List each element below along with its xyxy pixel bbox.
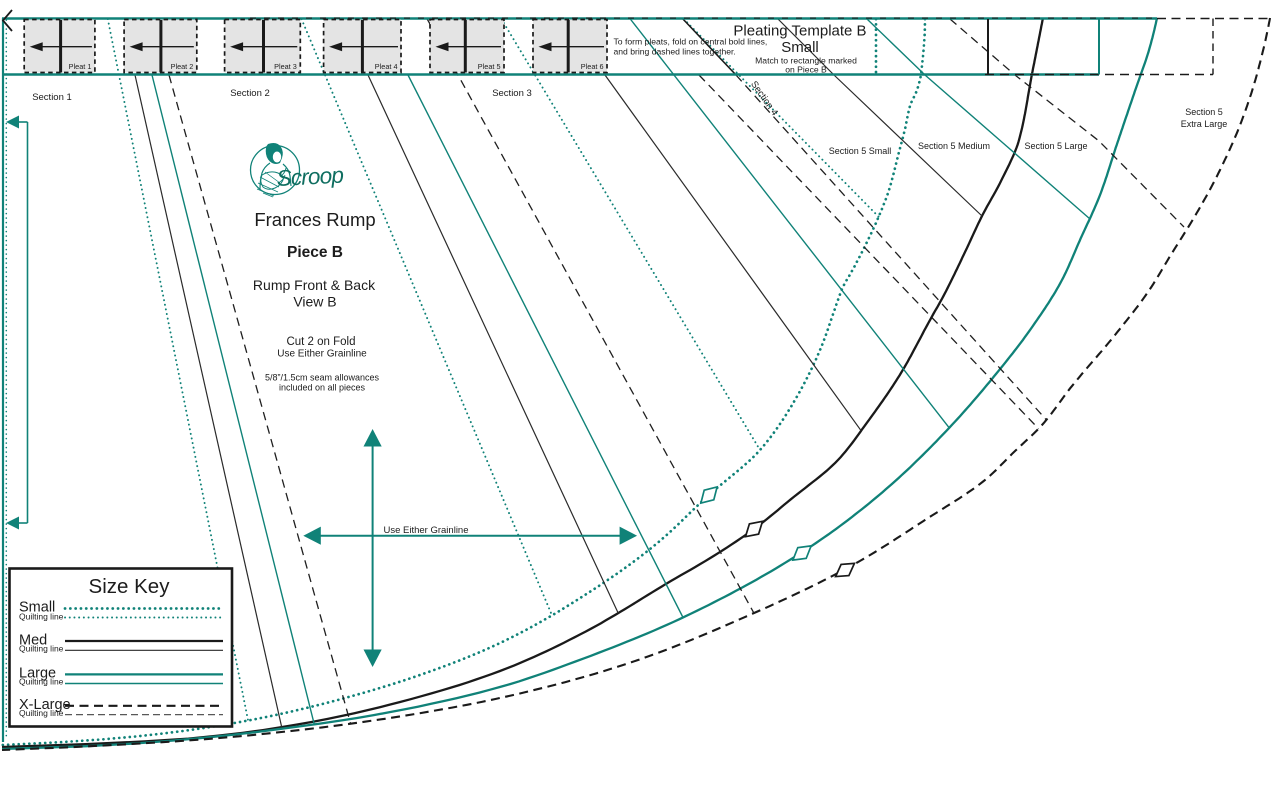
svg-text:Pleat 3: Pleat 3 — [274, 62, 297, 71]
svg-text:included on all pieces: included on all pieces — [279, 383, 366, 393]
svg-text:on Piece B: on Piece B — [785, 65, 827, 75]
svg-text:Quilting line: Quilting line — [19, 644, 64, 654]
svg-text:and bring dashed lines togethe: and bring dashed lines together. — [614, 47, 736, 57]
svg-text:View B: View B — [293, 294, 336, 310]
svg-text:Pleating Template B: Pleating Template B — [733, 23, 866, 40]
svg-text:5/8”/1.5cm seam allowances: 5/8”/1.5cm seam allowances — [265, 373, 380, 383]
svg-text:Piece B: Piece B — [287, 244, 343, 261]
svg-text:Scroop: Scroop — [276, 163, 344, 191]
svg-text:Frances Rump: Frances Rump — [254, 209, 375, 230]
svg-text:Pleat 2: Pleat 2 — [171, 62, 194, 71]
svg-text:Section 5 Medium: Section 5 Medium — [918, 141, 990, 151]
svg-text:Section 5 Large: Section 5 Large — [1024, 141, 1087, 151]
svg-text:Rump Front & Back: Rump Front & Back — [253, 277, 376, 293]
svg-text:Size Key: Size Key — [89, 575, 171, 598]
svg-text:Small: Small — [781, 39, 819, 56]
svg-text:Pleat 6: Pleat 6 — [581, 62, 604, 71]
svg-text:Pleat 1: Pleat 1 — [69, 62, 92, 71]
svg-text:Section 5 Small: Section 5 Small — [829, 146, 892, 156]
svg-text:Cut 2 on Fold: Cut 2 on Fold — [286, 336, 355, 348]
svg-text:Quilting line: Quilting line — [19, 708, 64, 718]
svg-text:Quilting line: Quilting line — [19, 677, 64, 687]
svg-text:Pleat 4: Pleat 4 — [375, 62, 398, 71]
svg-text:Extra Large: Extra Large — [1181, 119, 1228, 129]
svg-text:Pleat 5: Pleat 5 — [478, 62, 501, 71]
svg-text:Use Either Grainline: Use Either Grainline — [277, 349, 367, 360]
svg-text:Section 2: Section 2 — [230, 88, 270, 99]
svg-text:Quilting line: Quilting line — [19, 612, 64, 622]
svg-text:Section 5: Section 5 — [1185, 107, 1223, 117]
svg-text:Section 1: Section 1 — [32, 92, 72, 103]
svg-text:Use Either Grainline: Use Either Grainline — [383, 525, 468, 536]
svg-text:Section 3: Section 3 — [492, 88, 532, 99]
